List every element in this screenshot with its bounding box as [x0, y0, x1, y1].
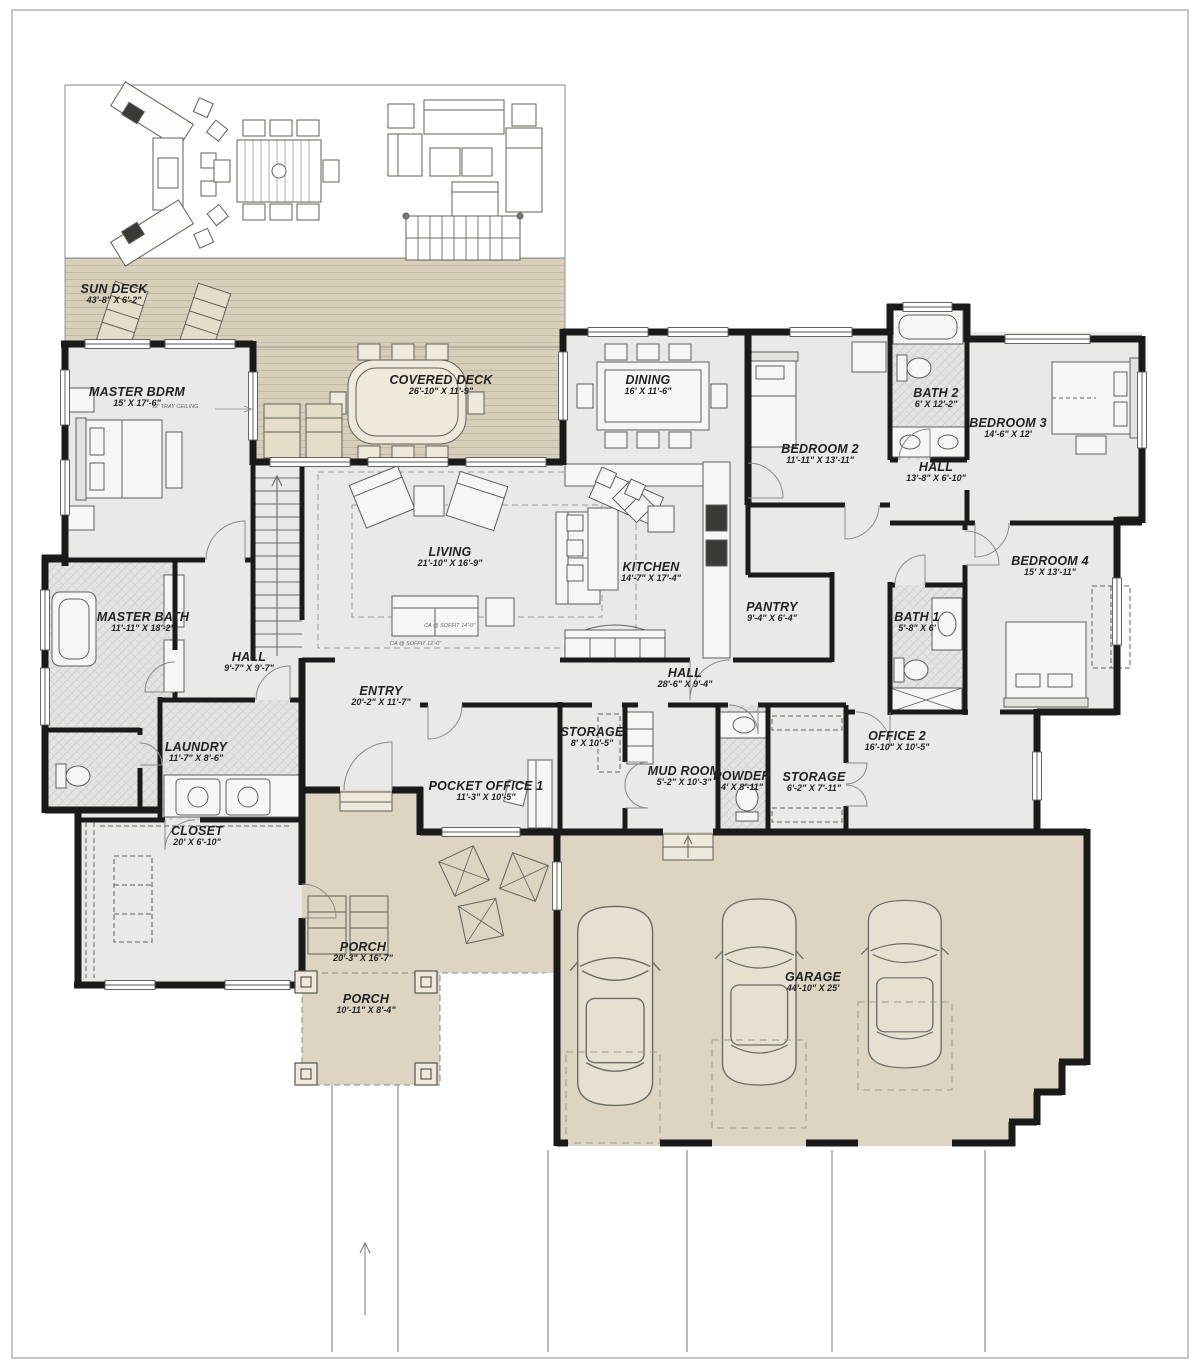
room-label-laundry: LAUNDRY11'-7" X 8'-6": [165, 741, 227, 764]
mudroom-lockers: [627, 712, 653, 764]
annotation-tray-ceiling: 12' TRAY CEILING: [152, 404, 198, 410]
room-label-covered-deck: COVERED DECK26'-10" X 11'-9": [389, 374, 492, 397]
room-label-dining: DINING16' X 11'-6": [625, 374, 672, 397]
room-label-pantry: PANTRY9'-4" X 6'-4": [746, 601, 797, 624]
room-label-storage-center: STORAGE8' X 10'-5": [561, 726, 624, 749]
room-label-storage-right: STORAGE6'-2" X 7'-11": [783, 771, 846, 794]
annotation-soffit-14: CA @ SOFFIT 14'-0": [424, 623, 475, 629]
room-label-pocket-office-1: POCKET OFFICE 111'-3" X 10'-5": [429, 780, 544, 803]
room-label-bedroom-4: BEDROOM 415' X 13'-11": [1011, 555, 1089, 578]
room-label-kitchen: KITCHEN14'-7" X 17'-4": [621, 561, 681, 584]
laundry-appliances: [164, 775, 300, 817]
room-label-hall-right: HALL13'-8" X 6'-10": [906, 461, 966, 484]
annotation-soffit-12: CA @ SOFFIT 12'-0": [390, 641, 441, 647]
mud-steps: [663, 834, 713, 860]
room-label-mud-room: MUD ROOM5'-2" X 10'-3": [648, 765, 720, 788]
floor-plan-page: SUN DECK43'-8" X 6'-2" COVERED DECK26'-1…: [0, 0, 1200, 1367]
room-label-hall-center: HALL28'-6" X 9'-4": [658, 667, 713, 690]
patio-area: [65, 82, 565, 266]
room-label-bedroom-3: BEDROOM 314'-6" X 12': [969, 417, 1047, 440]
entry-steps: [340, 792, 392, 811]
room-label-garage: GARAGE44'-10" X 25': [785, 971, 841, 994]
deck-stairs: [403, 213, 523, 260]
room-label-entry: ENTRY20'-2" X 11'-7": [351, 685, 410, 708]
room-label-porch-front: PORCH10'-11" X 8'-4": [336, 993, 395, 1016]
room-label-master-bath: MASTER BATH11'-11" X 18'-2": [97, 611, 189, 634]
room-label-bedroom-2: BEDROOM 211'-11" X 13'-11": [781, 443, 859, 466]
room-label-bath-1: BATH 15'-8" X 6': [894, 611, 939, 634]
room-label-office-2: OFFICE 216'-10" X 10'-5": [865, 730, 930, 753]
room-label-powder: POWDER4' X 8'-11": [713, 770, 770, 793]
room-label-sun-deck: SUN DECK43'-8" X 6'-2": [81, 283, 148, 306]
room-label-living: LIVING21'-10" X 16'-9": [418, 546, 483, 569]
room-label-porch: PORCH20'-3" X 16'-7": [333, 941, 393, 964]
room-label-hall-left: HALL9'-7" X 9'-7": [224, 651, 274, 674]
floor-plan-drawing: [0, 0, 1200, 1367]
room-label-bath-2: BATH 26' X 12'-2": [913, 387, 958, 410]
room-label-closet: CLOSET20' X 6'-10": [171, 825, 223, 848]
